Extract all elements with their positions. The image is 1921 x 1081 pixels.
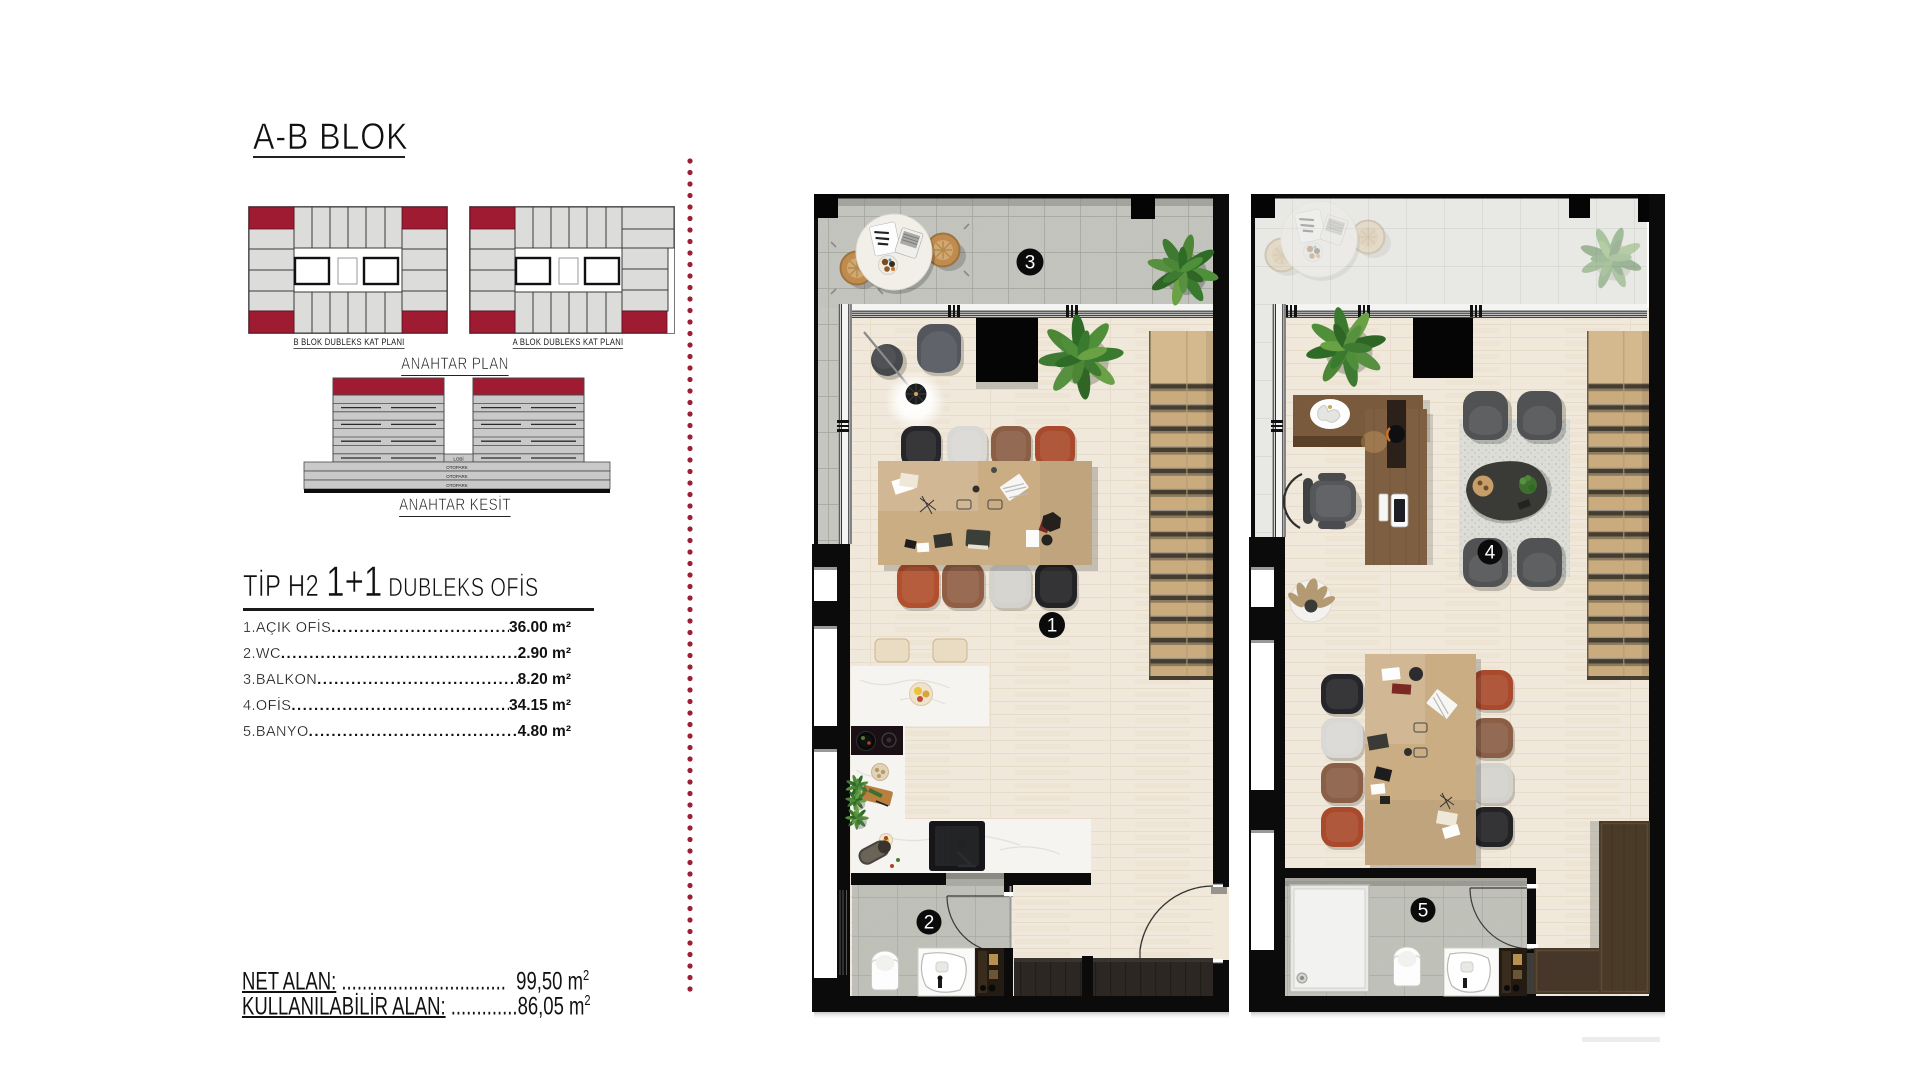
svg-text:OTOPARK: OTOPARK — [446, 474, 468, 479]
svg-text:OTOPARK: OTOPARK — [446, 483, 468, 488]
svg-text:LOBİ: LOBİ — [453, 456, 463, 462]
svg-text:1: 1 — [1047, 616, 1058, 637]
svg-text:2: 2 — [924, 913, 935, 934]
svg-text:3: 3 — [1025, 253, 1036, 274]
svg-text:5: 5 — [1418, 901, 1429, 922]
svg-text:OTOPARK: OTOPARK — [446, 465, 468, 470]
svg-text:4: 4 — [1485, 543, 1496, 564]
